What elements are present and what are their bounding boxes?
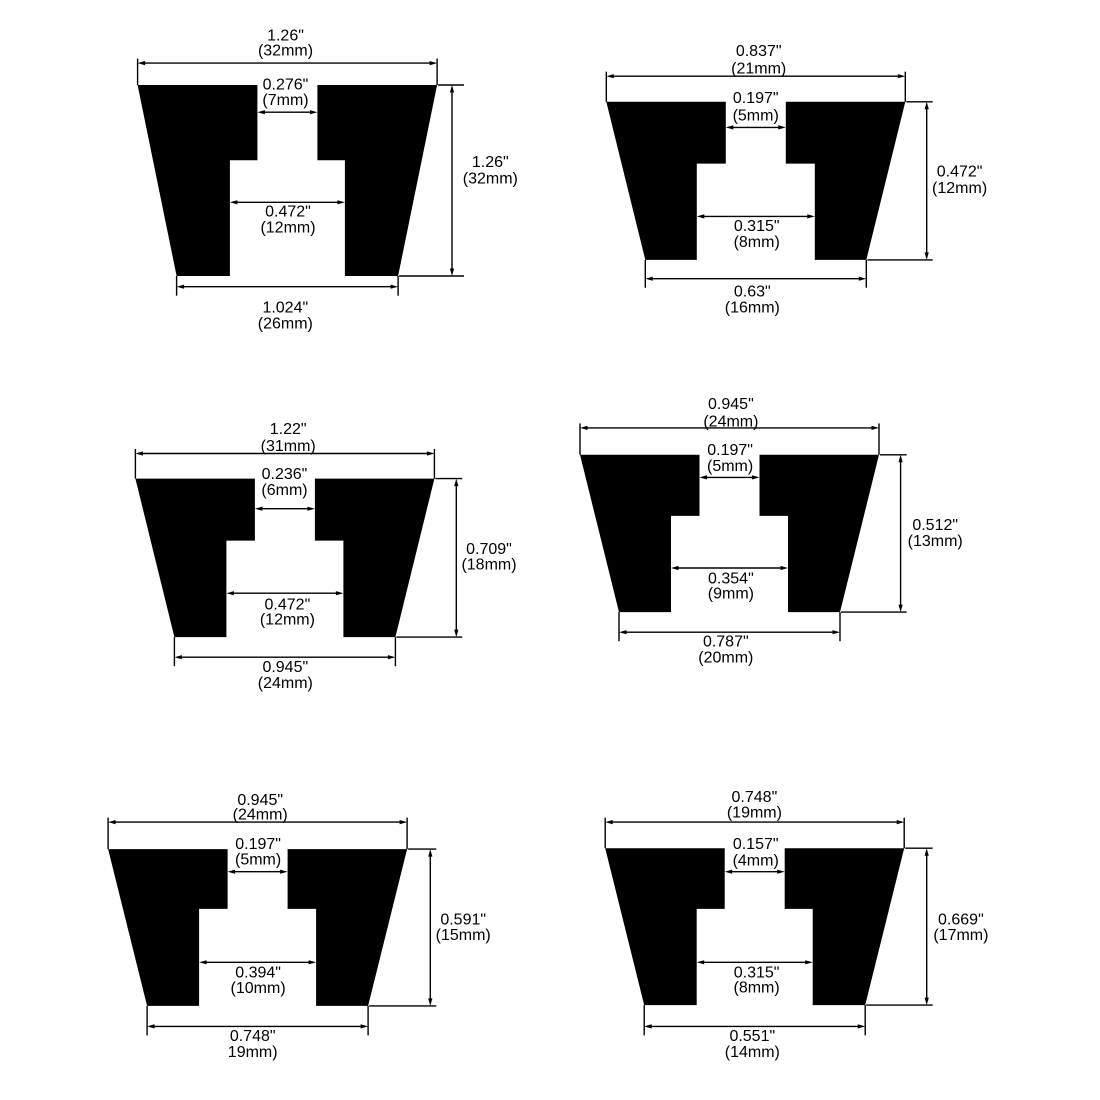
svg-text:(8mm): (8mm) <box>733 980 779 997</box>
svg-text:(26mm): (26mm) <box>258 316 313 333</box>
svg-text:1.22": 1.22" <box>270 421 307 438</box>
svg-text:(24mm): (24mm) <box>233 807 288 824</box>
svg-text:0.551": 0.551" <box>729 1028 775 1045</box>
svg-text:(12mm): (12mm) <box>260 612 315 629</box>
svg-text:(24mm): (24mm) <box>258 675 313 692</box>
svg-text:(4mm): (4mm) <box>733 852 779 869</box>
svg-text:(20mm): (20mm) <box>698 650 753 667</box>
svg-text:0.945": 0.945" <box>708 396 754 413</box>
svg-text:0.236": 0.236" <box>262 466 308 483</box>
svg-text:0.669": 0.669" <box>938 911 984 928</box>
svg-text:(5mm): (5mm) <box>235 852 281 869</box>
svg-text:(17mm): (17mm) <box>933 927 988 944</box>
svg-text:0.157": 0.157" <box>733 836 779 853</box>
svg-text:0.945": 0.945" <box>262 659 308 676</box>
svg-text:(5mm): (5mm) <box>733 107 779 124</box>
svg-text:19mm): 19mm) <box>228 1044 278 1061</box>
svg-text:(9mm): (9mm) <box>708 586 754 603</box>
svg-text:(6mm): (6mm) <box>261 482 307 499</box>
svg-text:(32mm): (32mm) <box>463 170 518 187</box>
svg-text:0.787": 0.787" <box>703 633 749 650</box>
svg-text:0.197": 0.197" <box>707 442 753 459</box>
svg-text:(5mm): (5mm) <box>707 458 753 475</box>
svg-text:0.748": 0.748" <box>230 1028 276 1045</box>
svg-text:0.591": 0.591" <box>440 911 486 928</box>
svg-text:0.197": 0.197" <box>733 90 779 107</box>
svg-text:0.63": 0.63" <box>734 283 771 300</box>
svg-text:(12mm): (12mm) <box>260 220 315 237</box>
svg-text:0.837": 0.837" <box>736 43 782 60</box>
svg-text:1.26": 1.26" <box>472 154 509 171</box>
svg-text:(15mm): (15mm) <box>436 927 491 944</box>
svg-text:(21mm): (21mm) <box>731 60 786 77</box>
svg-text:(13mm): (13mm) <box>908 533 963 550</box>
svg-text:(19mm): (19mm) <box>727 805 782 822</box>
svg-text:(24mm): (24mm) <box>703 413 758 430</box>
svg-text:(7mm): (7mm) <box>262 92 308 109</box>
svg-text:1.024": 1.024" <box>262 299 308 316</box>
svg-text:(16mm): (16mm) <box>725 300 780 317</box>
svg-text:(32mm): (32mm) <box>258 43 313 60</box>
svg-text:0.315": 0.315" <box>734 218 780 235</box>
svg-text:(10mm): (10mm) <box>231 980 286 997</box>
svg-text:(14mm): (14mm) <box>725 1044 780 1061</box>
svg-text:0.472": 0.472" <box>265 204 311 221</box>
svg-text:(31mm): (31mm) <box>261 438 316 455</box>
svg-text:0.512": 0.512" <box>912 517 958 534</box>
svg-text:(18mm): (18mm) <box>461 557 516 574</box>
svg-text:(8mm): (8mm) <box>734 234 780 251</box>
svg-text:0.709": 0.709" <box>466 541 512 558</box>
svg-text:(12mm): (12mm) <box>932 180 987 197</box>
svg-text:0.472": 0.472" <box>937 164 983 181</box>
